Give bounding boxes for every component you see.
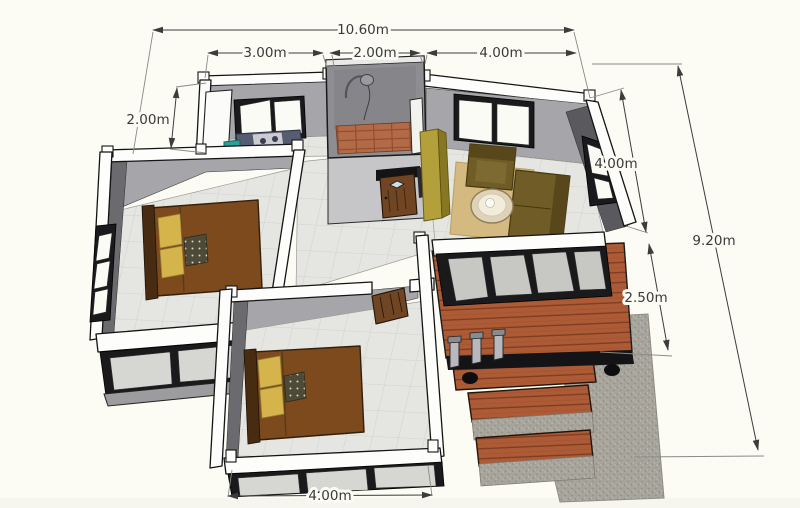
table-pot bbox=[486, 199, 495, 208]
dim-label-overall-depth: 9.20m bbox=[692, 233, 735, 249]
living-room bbox=[426, 88, 636, 306]
floor-plan-canvas: 10.60m 3.00m 2.00m 4.00m 2.00m 4.00m 9.2… bbox=[0, 0, 800, 508]
yellow-cabinet bbox=[420, 129, 450, 221]
railing-post bbox=[470, 332, 483, 364]
bed-pillow bbox=[160, 246, 184, 278]
deck-foot bbox=[462, 372, 478, 384]
railing-post bbox=[492, 329, 505, 360]
armchair bbox=[466, 144, 516, 190]
stove-burner bbox=[272, 136, 278, 142]
dim-label-kitchen-width: 3.00m bbox=[243, 45, 286, 61]
bed-pillow bbox=[258, 356, 282, 388]
railing-post bbox=[448, 336, 461, 368]
living-back-window-pane bbox=[459, 100, 492, 142]
dim-label-kitchen-depth: 2.00m bbox=[126, 112, 169, 128]
bed-cushion bbox=[284, 372, 306, 402]
dim-label-living-depth: 4.00m bbox=[594, 156, 637, 172]
bed bbox=[142, 200, 262, 300]
bottom-edge-band bbox=[0, 498, 800, 508]
coffee-table bbox=[471, 189, 513, 223]
bathroom-floor bbox=[336, 122, 416, 154]
shower-head bbox=[361, 75, 374, 86]
wall-post bbox=[428, 440, 438, 452]
bed-pillow bbox=[158, 214, 182, 248]
dim-label-overall-width: 10.60m bbox=[337, 22, 389, 38]
stove-burner bbox=[260, 138, 266, 144]
deck-window-wall bbox=[432, 232, 612, 306]
living-back-window-pane bbox=[497, 104, 529, 145]
dim-label-bedroom-width: 4.00m bbox=[308, 488, 351, 504]
dim-label-bathroom-width: 2.00m bbox=[353, 45, 396, 61]
bed-pillow bbox=[260, 386, 284, 418]
dim-label-living-width: 4.00m bbox=[479, 45, 522, 61]
bathroom-back-wall-face bbox=[334, 66, 416, 130]
door-handle bbox=[385, 197, 388, 200]
bed-cushion bbox=[184, 234, 208, 266]
bed bbox=[244, 346, 364, 444]
deck-foot bbox=[604, 364, 620, 376]
wall-post bbox=[226, 450, 236, 462]
dim-label-terrace-depth: 2.50m bbox=[624, 290, 667, 306]
front-door bbox=[376, 166, 420, 218]
